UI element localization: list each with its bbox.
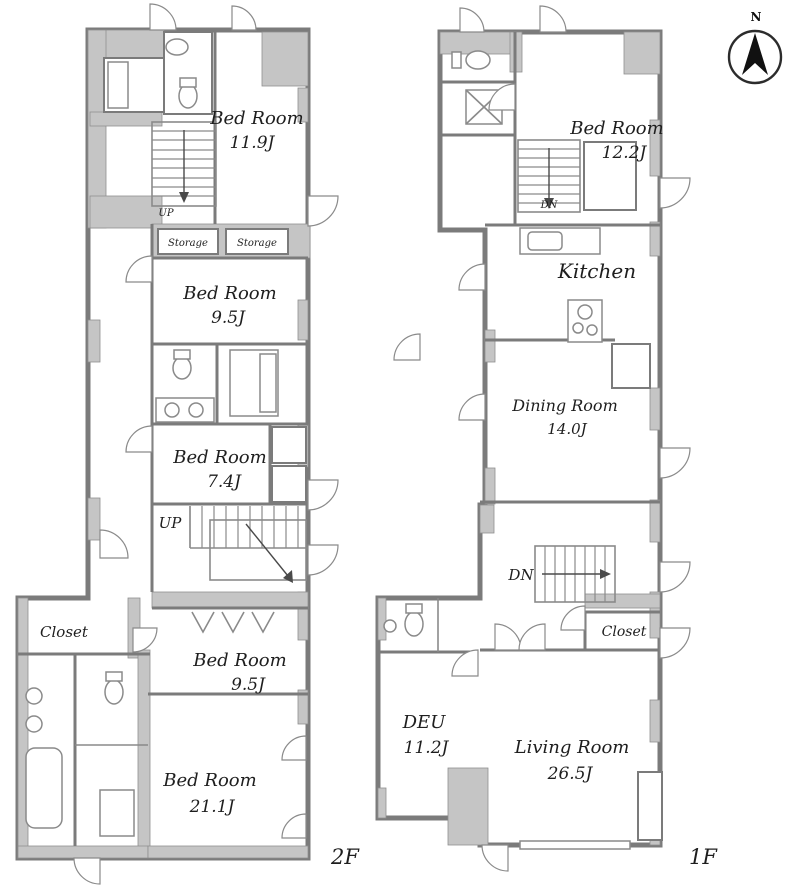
2f-bedroom-a-name: Bed Room <box>209 108 303 129</box>
2f-bedroom-d-size: 9.5J <box>231 675 266 695</box>
1f-bedroom-size: 12.2J <box>602 143 648 163</box>
1f-deu-size: 11.2J <box>404 738 450 758</box>
shelf-icon <box>260 354 276 412</box>
1f-dining-name: Dining Room <box>511 396 617 415</box>
toilet-tank-icon <box>174 350 190 359</box>
toilet-icon <box>405 612 423 636</box>
2f-bedroom-d-name: Bed Room <box>192 650 286 671</box>
compass-label: N <box>751 10 762 24</box>
floor-2f-label: 2F <box>330 845 360 869</box>
2f-bedroom-c-name: Bed Room <box>172 447 266 468</box>
2f-stairs-top-label: UP <box>158 208 173 219</box>
storage-right-label: Storage <box>237 238 277 249</box>
2f-bedroom-a-size: 11.9J <box>230 133 276 153</box>
toilet-icon <box>173 357 191 379</box>
2f-bedroom-b-name: Bed Room <box>182 283 276 304</box>
2f-bedroom-e-name: Bed Room <box>162 770 256 791</box>
1f-stairs-mid-label: DN <box>507 566 534 584</box>
1f-staircase-mid: DN <box>507 546 615 602</box>
2f-stairs-mid-label: UP <box>159 514 183 532</box>
floor-1f-label: 1F <box>689 845 718 869</box>
sink-icon <box>166 39 188 55</box>
toilet-tank-icon <box>452 52 461 68</box>
2f-bedroom-c-size: 7.4J <box>207 472 242 492</box>
toilet-icon <box>105 680 123 704</box>
1f-kitchen-fixtures <box>520 228 650 388</box>
1f-deu-name: DEU <box>402 712 447 733</box>
window-icon <box>520 841 630 849</box>
floor-1f-plan: DN DN <box>378 6 718 871</box>
compass-north-icon: N <box>729 10 781 83</box>
2f-bedroom-e-size: 21.1J <box>189 797 236 817</box>
toilet-tank-icon <box>406 604 422 613</box>
2f-closet-label: Closet <box>40 623 89 641</box>
kitchen-sink-icon <box>528 232 562 250</box>
toilet-tank-icon <box>106 672 122 681</box>
1f-deu-toilet <box>384 598 438 652</box>
toilet-icon <box>466 51 490 69</box>
2f-wall-poche <box>18 30 310 858</box>
1f-living-name: Living Room <box>514 737 630 758</box>
2f-bedroom-b-size: 9.5J <box>211 308 246 328</box>
1f-closet-label: Closet <box>602 624 647 640</box>
washer-icon <box>100 790 134 836</box>
bathtub-icon <box>26 748 62 828</box>
1f-utility-rooms <box>452 51 502 124</box>
floor-plan-drawing: UP Storage Storage <box>0 0 800 893</box>
1f-dining-size: 14.0J <box>547 420 587 438</box>
2f-bifold-doors <box>192 612 274 632</box>
sink-icon <box>189 403 203 417</box>
floor-plan-page: UP Storage Storage <box>0 0 800 893</box>
toilet-tank-icon <box>180 78 196 87</box>
2f-outer-wall <box>18 30 308 858</box>
2f-closet-box <box>272 466 306 502</box>
1f-stairs-top-label: DN <box>540 200 559 211</box>
sink-icon <box>165 403 179 417</box>
sink-icon <box>26 716 42 732</box>
1f-living-shaft <box>638 772 662 840</box>
1f-kitchen-label: Kitchen <box>557 259 636 283</box>
2f-closet-box <box>272 427 306 463</box>
sink-icon <box>26 688 42 704</box>
2f-bath-bottom <box>26 672 134 836</box>
floor-2f-plan: UP Storage Storage <box>18 4 360 884</box>
storage-left-label: Storage <box>168 238 208 249</box>
vanity-counter-icon <box>108 62 128 108</box>
1f-living-size: 26.5J <box>547 764 594 784</box>
2f-staircase-mid: UP <box>159 506 308 583</box>
sink-icon <box>384 620 396 632</box>
1f-bedroom-name: Bed Room <box>569 118 663 139</box>
1f-dining-cabinet <box>612 344 650 388</box>
